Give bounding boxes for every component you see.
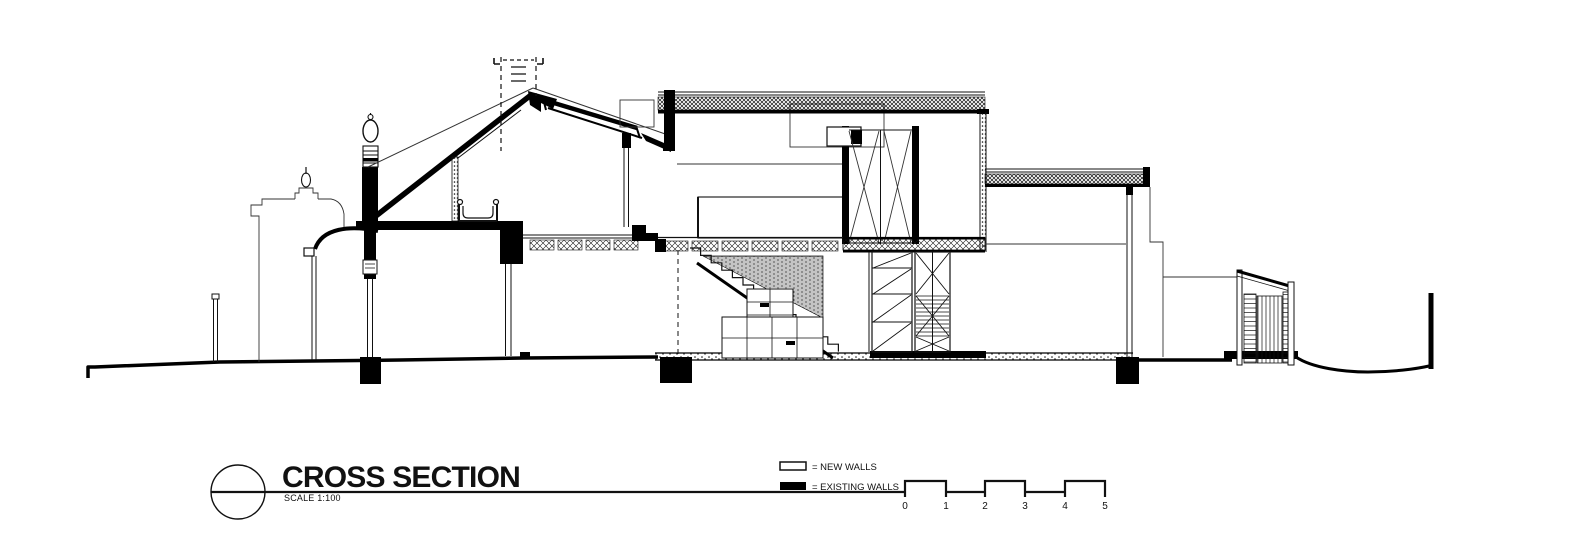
ridge-post bbox=[624, 148, 629, 227]
front-fence-post bbox=[212, 294, 219, 362]
facade-finial-pedestal bbox=[295, 188, 318, 199]
veranda-post bbox=[312, 256, 316, 360]
attic-knee-wall bbox=[452, 157, 458, 221]
x-braced-glazing bbox=[827, 126, 919, 244]
flat-roof-left-cap bbox=[664, 90, 675, 151]
rear-floor-insulation bbox=[530, 240, 638, 250]
stair-void-wall-beyond bbox=[698, 197, 843, 238]
attic-floor-slab bbox=[356, 221, 523, 230]
wing-roof-membrane bbox=[985, 169, 1150, 172]
skylight-glass bbox=[544, 100, 637, 128]
finial-pedestal-band-dark bbox=[363, 158, 378, 162]
roof-rafter-left bbox=[372, 95, 531, 219]
stair-flight-beyond bbox=[915, 252, 950, 352]
drawing-sheet: CROSS SECTION SCALE 1:100 = NEW WALLS = … bbox=[0, 0, 1582, 544]
new-walls-label: = NEW WALLS bbox=[812, 462, 877, 473]
finial-pedestal bbox=[363, 146, 378, 167]
braced-frame-panel bbox=[869, 252, 912, 352]
cross-section-drawing: CROSS SECTION SCALE 1:100 = NEW WALLS = … bbox=[0, 0, 1582, 544]
addition-floor-insulation bbox=[662, 241, 838, 251]
right-wing bbox=[985, 167, 1294, 365]
shed-roof bbox=[1237, 271, 1293, 287]
floor-slab-strip bbox=[843, 239, 985, 250]
ridge-post-cap bbox=[622, 133, 631, 148]
floor-pier bbox=[500, 230, 523, 264]
shed-left-post bbox=[1237, 270, 1242, 365]
finial-knob bbox=[368, 115, 373, 120]
wing-post bbox=[1127, 195, 1132, 357]
scale-bar-label-2: 2 bbox=[982, 501, 988, 512]
shed-right-post bbox=[1288, 282, 1294, 365]
floor-step bbox=[632, 225, 658, 241]
flat-roof-soffit bbox=[658, 110, 985, 114]
bathtub bbox=[458, 200, 499, 222]
drawing-scale-label: SCALE 1:100 bbox=[284, 493, 341, 503]
ground-dip bbox=[1296, 357, 1429, 372]
scale-bar-label-4: 4 bbox=[1062, 501, 1068, 512]
drawing-title: CROSS SECTION bbox=[282, 461, 520, 494]
scale-bar-label-0: 0 bbox=[902, 501, 908, 512]
wing-post-cap bbox=[1126, 186, 1133, 195]
floor-slab-strip-bottom bbox=[843, 250, 985, 253]
new-walls-swatch bbox=[780, 462, 806, 470]
floor-left-block bbox=[655, 239, 666, 252]
sub-floor-stump bbox=[506, 264, 512, 356]
french-door-below bbox=[368, 279, 373, 357]
roof-ceiling-line bbox=[458, 110, 521, 158]
facade-finial bbox=[302, 173, 311, 187]
facade-outline bbox=[251, 199, 344, 362]
wing-roof-end-cap bbox=[1143, 167, 1150, 187]
scale-bar-label-1: 1 bbox=[943, 501, 949, 512]
legend: = NEW WALLS = EXISTING WALLS bbox=[780, 462, 899, 493]
wall-window-head bbox=[363, 260, 377, 274]
new-addition bbox=[655, 90, 989, 358]
title-block: CROSS SECTION SCALE 1:100 bbox=[211, 461, 520, 519]
shed-siding bbox=[1257, 296, 1282, 363]
parapet-beyond bbox=[1150, 187, 1238, 357]
wing-roof-hatch bbox=[985, 174, 1148, 184]
wing-roof-soffit bbox=[985, 184, 1148, 187]
scale-bar-label-3: 3 bbox=[1022, 501, 1028, 512]
existing-walls-swatch bbox=[780, 482, 806, 490]
shed-louver-left bbox=[1244, 294, 1256, 363]
finial-ball bbox=[363, 120, 378, 142]
roof-gable-line-right bbox=[533, 88, 671, 136]
flat-roof-membrane bbox=[658, 92, 985, 95]
veranda-gutter bbox=[304, 248, 314, 256]
garden-shed bbox=[1237, 270, 1294, 365]
floor-slab-strip-top bbox=[843, 237, 985, 240]
flat-roof-slab-hatch bbox=[658, 97, 985, 110]
scale-bar-label-5: 5 bbox=[1102, 501, 1108, 512]
